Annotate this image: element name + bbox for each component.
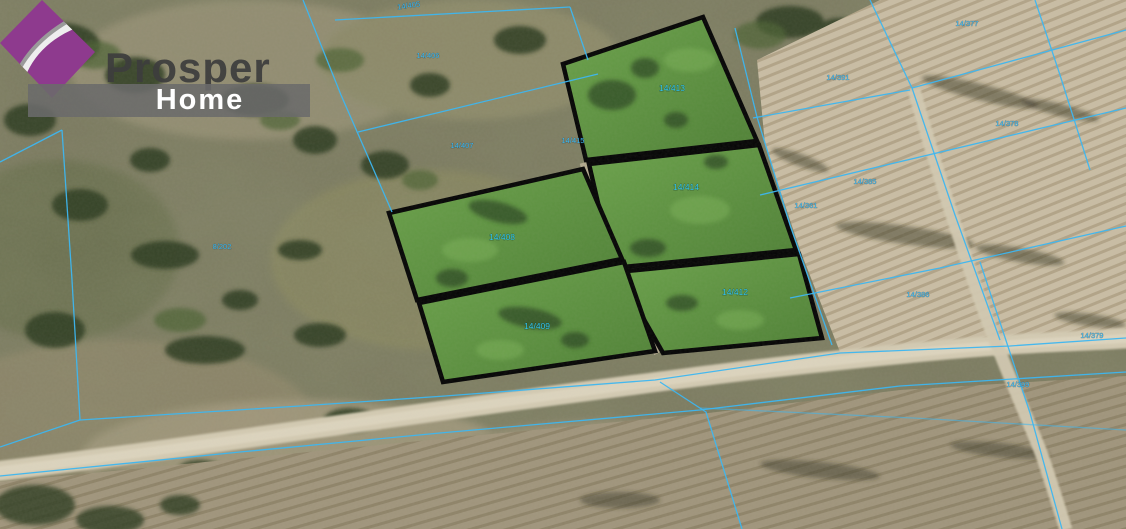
logo-sub-text: Home [156, 84, 245, 116]
parcel-label-14-378: 14/378 [996, 119, 1019, 128]
parcel-label-14-377: 14/377 [956, 19, 979, 28]
parcel-label-14-412: 14/412 [722, 287, 748, 297]
parcel-label-14-385: 14/385 [854, 177, 877, 186]
parcel-label-14-379: 14/379 [1081, 331, 1104, 340]
parcel-label-14-406: 14/406 [417, 51, 440, 60]
parcel-label-14-413: 14/413 [659, 83, 685, 93]
parcel-label-14-391: 14/391 [827, 73, 850, 82]
parcel-label-14-386: 14/386 [907, 290, 930, 299]
parcel-label-14-399: 14/399 [1007, 380, 1030, 389]
aerial-map: 14/41314/41414/40814/40914/41214/40514/4… [0, 0, 1126, 529]
parcel-label-14-414: 14/414 [673, 182, 699, 192]
parcel-label-14-408: 14/408 [489, 232, 515, 242]
parcel-label-14-415: 14/415 [562, 136, 585, 145]
parcel-label-14-407: 14/407 [451, 141, 474, 150]
parcel-label-8-202: 8/202 [213, 242, 232, 251]
listing-map-image: 14/41314/41414/40814/40914/41214/40514/4… [0, 0, 1126, 529]
parcel-label-14-409: 14/409 [524, 321, 550, 331]
parcel-label-14-361: 14/361 [795, 201, 818, 210]
